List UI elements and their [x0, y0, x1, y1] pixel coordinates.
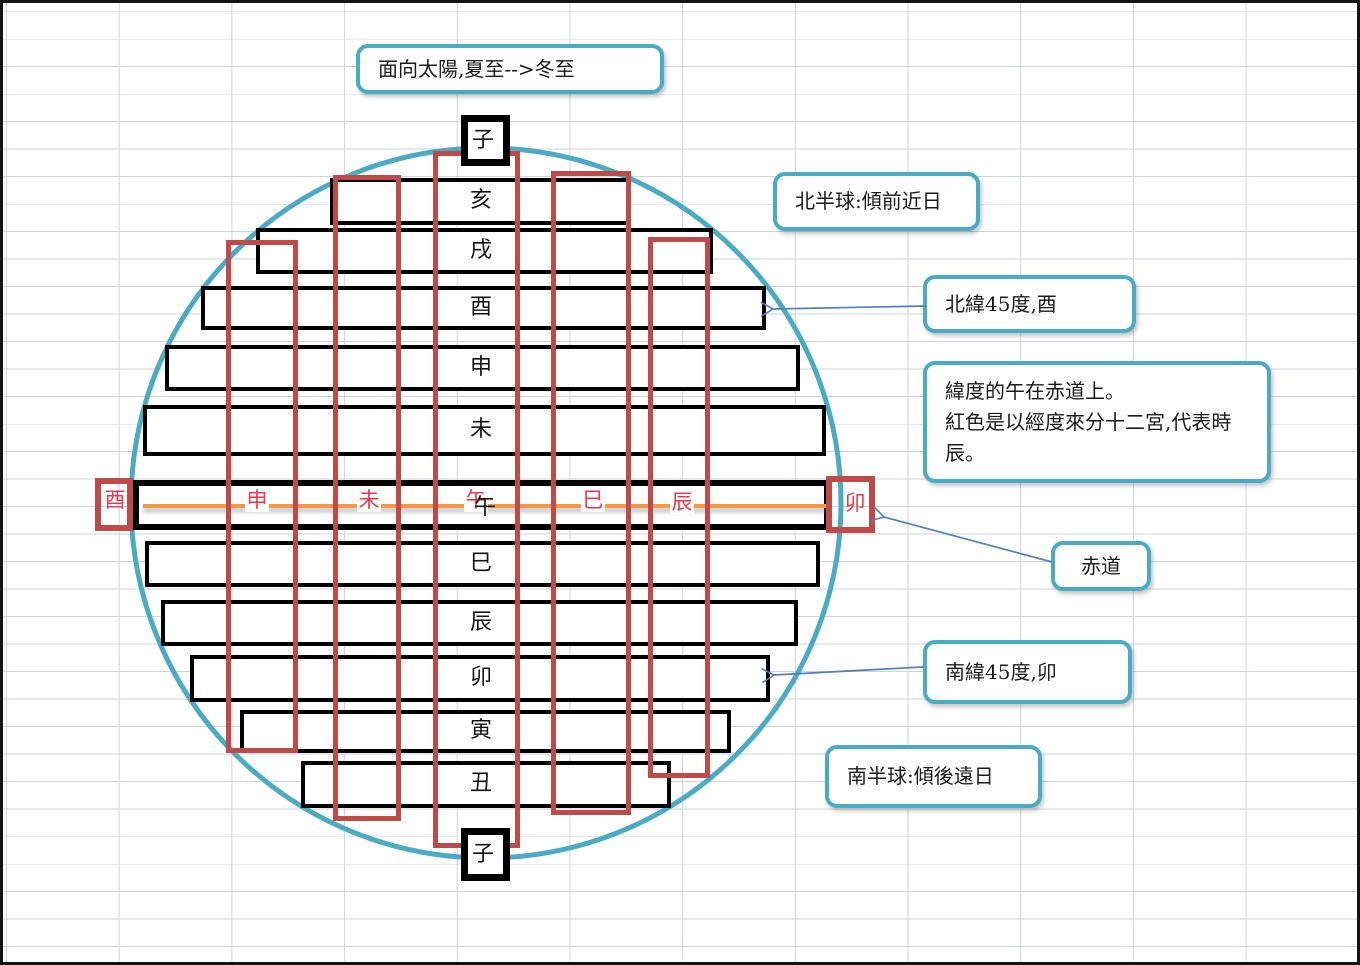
- spreadsheet-canvas: 亥 戌 酉 申 未 巳 辰 卯 寅 丑 酉 申 未 午 巳 辰 卯 午 子 子 …: [0, 0, 1360, 965]
- callout-note[interactable]: 緯度的午在赤道上。 紅色是以經度來分十二宮,代表時辰。: [923, 361, 1271, 483]
- callout-south-hemisphere[interactable]: 南半球:傾後遠日: [825, 745, 1042, 808]
- callout-note-line1: 緯度的午在赤道上。: [945, 379, 1125, 403]
- arrow-equator: [884, 517, 1052, 562]
- equator-bar-label-wu: 午: [473, 497, 497, 519]
- north-pole-label: 子: [470, 130, 496, 152]
- red-label-chen: 辰: [670, 491, 694, 514]
- arrow-south-lat45: [774, 667, 923, 675]
- callout-south-lat45[interactable]: 南緯45度,卯: [923, 640, 1132, 704]
- callout-south-hemisphere-text: 南半球:傾後遠日: [829, 757, 1012, 796]
- callout-south-lat45-text: 南緯45度,卯: [927, 653, 1075, 692]
- red-label-wei: 未: [357, 489, 381, 512]
- callout-facing-sun-text: 面向太陽,夏至-->冬至: [360, 50, 593, 89]
- red-label-si: 巳: [581, 489, 605, 512]
- callout-north-hemisphere-text: 北半球:傾前近日: [777, 182, 960, 221]
- callout-facing-sun[interactable]: 面向太陽,夏至-->冬至: [356, 44, 664, 94]
- callout-note-text: 緯度的午在赤道上。 紅色是以經度來分十二宮,代表時辰。: [927, 372, 1267, 473]
- callout-north-lat45[interactable]: 北緯45度,酉: [923, 275, 1136, 333]
- red-label-shen: 申: [245, 489, 269, 512]
- arrow-north-lat45: [773, 306, 926, 309]
- south-pole-label: 子: [470, 844, 496, 866]
- callout-equator-text: 赤道: [1075, 547, 1127, 586]
- callout-note-line2: 紅色是以經度來分十二宮,代表時辰。: [945, 410, 1231, 465]
- callout-equator[interactable]: 赤道: [1051, 541, 1151, 591]
- red-label-mao: 卯: [843, 492, 867, 515]
- red-label-you: 酉: [103, 489, 127, 512]
- callout-north-hemisphere[interactable]: 北半球:傾前近日: [773, 172, 980, 231]
- callout-north-lat45-text: 北緯45度,酉: [927, 285, 1075, 324]
